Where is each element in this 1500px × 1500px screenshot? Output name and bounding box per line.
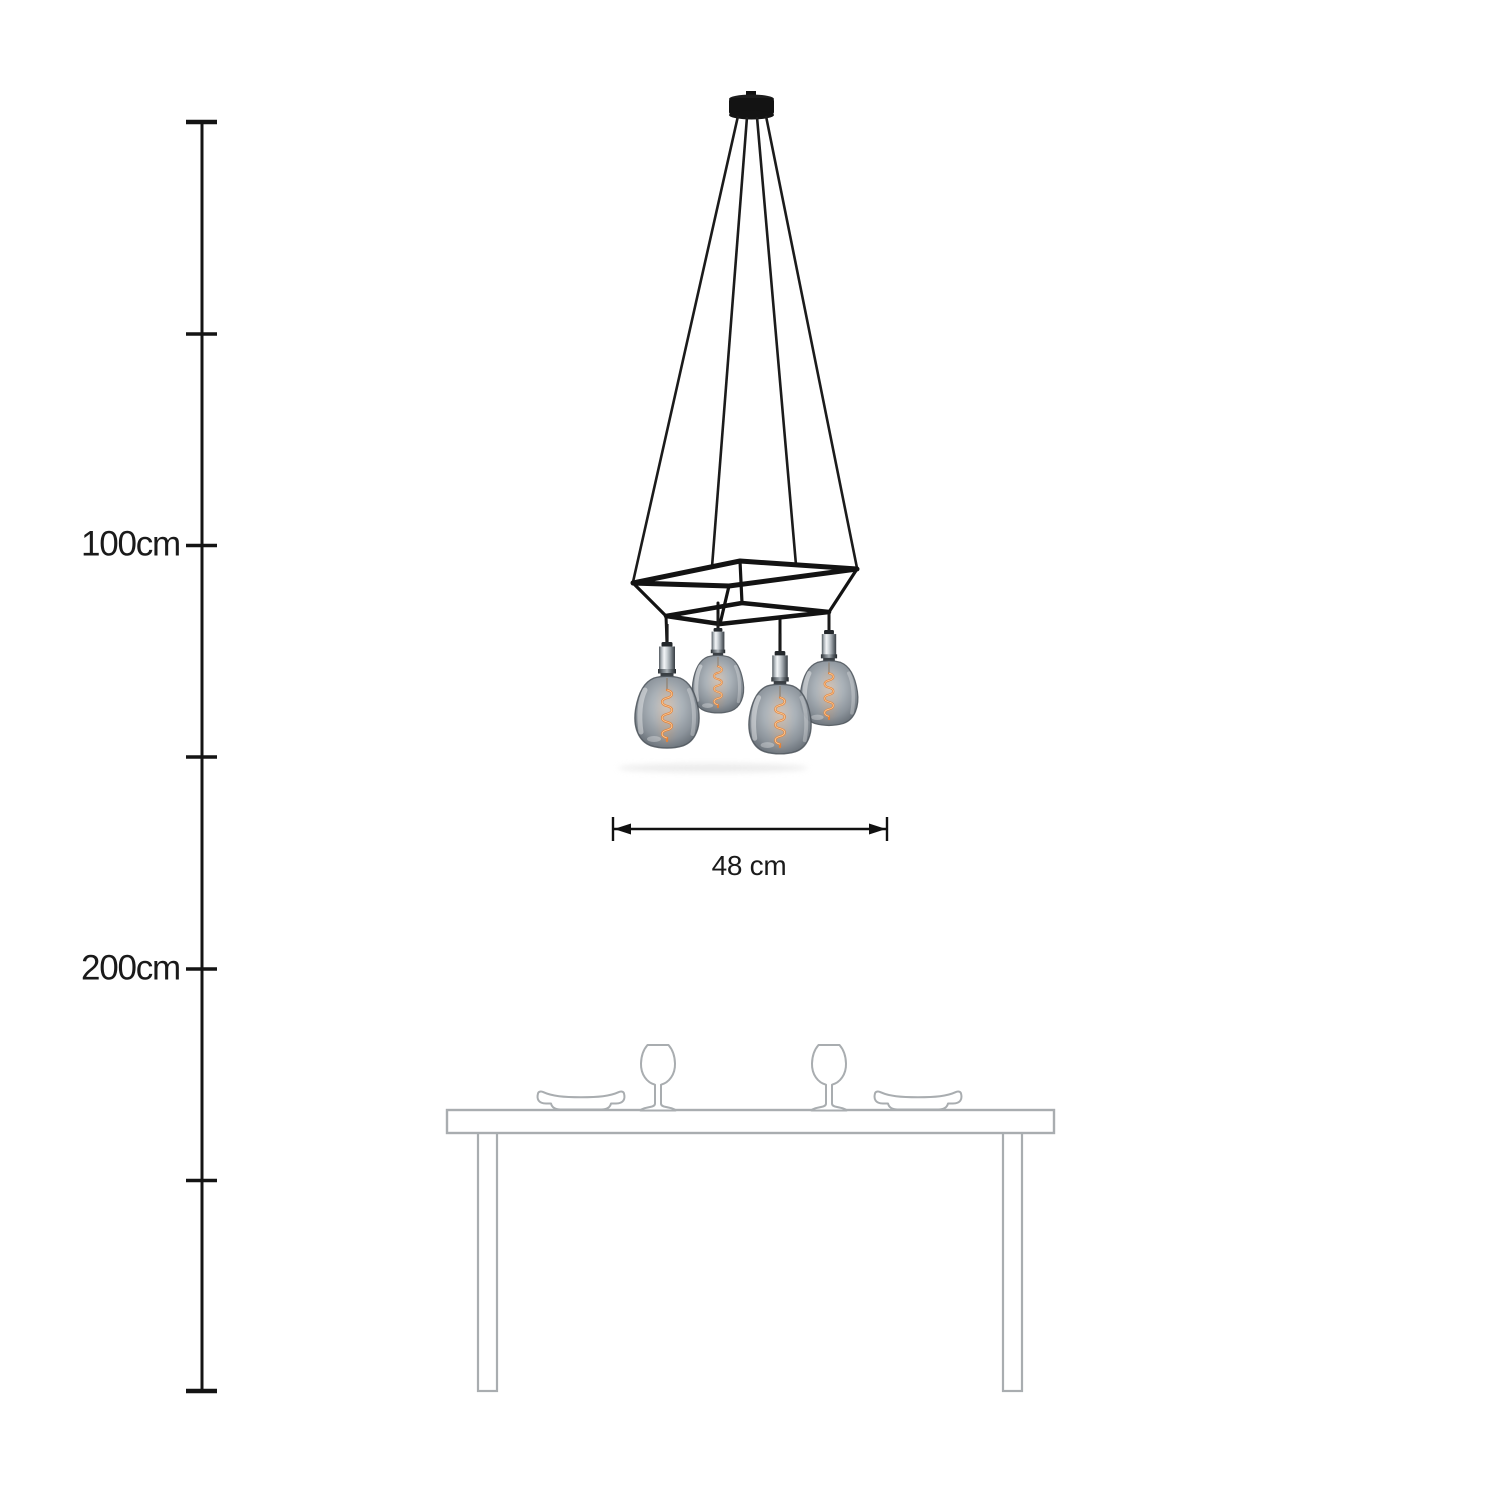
height-ruler <box>186 122 217 1391</box>
arrowhead-left <box>614 824 631 835</box>
ceiling-rose-icon <box>729 91 774 120</box>
plate-icon <box>875 1092 962 1110</box>
pendant-cable <box>633 116 738 582</box>
wine-glass-icon <box>812 1045 847 1111</box>
pendant-bulb-back-left <box>692 614 743 713</box>
width-dimension-label: 48 cm <box>712 850 787 882</box>
dining-table <box>447 1045 1054 1391</box>
product-dimension-diagram: 100cm 200cm 48 cm <box>0 0 1500 1500</box>
pendant-cable <box>766 116 857 568</box>
pendant-cables <box>633 116 857 582</box>
table-leg-right <box>1003 1132 1022 1391</box>
table-top <box>447 1110 1054 1133</box>
pendant-cable <box>712 117 747 567</box>
pendant-bulb-front-right <box>749 634 811 754</box>
table-leg-left <box>478 1132 497 1391</box>
ruler-label-200cm: 200cm <box>81 948 180 988</box>
pendant-cable <box>757 117 796 565</box>
wine-glass-icon <box>641 1045 676 1111</box>
ruler-label-100cm: 100cm <box>81 524 180 564</box>
pendant-lamp <box>618 91 858 773</box>
cage-upper-frame <box>633 561 857 586</box>
plate-icon <box>538 1092 625 1110</box>
width-dimension-arrow <box>613 817 887 841</box>
arrowhead-right <box>869 824 886 835</box>
cage-lower-frame <box>666 603 829 624</box>
pendant-bulb-front-left <box>635 624 699 748</box>
bulb-shadow <box>618 764 808 773</box>
diagram-canvas <box>0 0 1500 1500</box>
